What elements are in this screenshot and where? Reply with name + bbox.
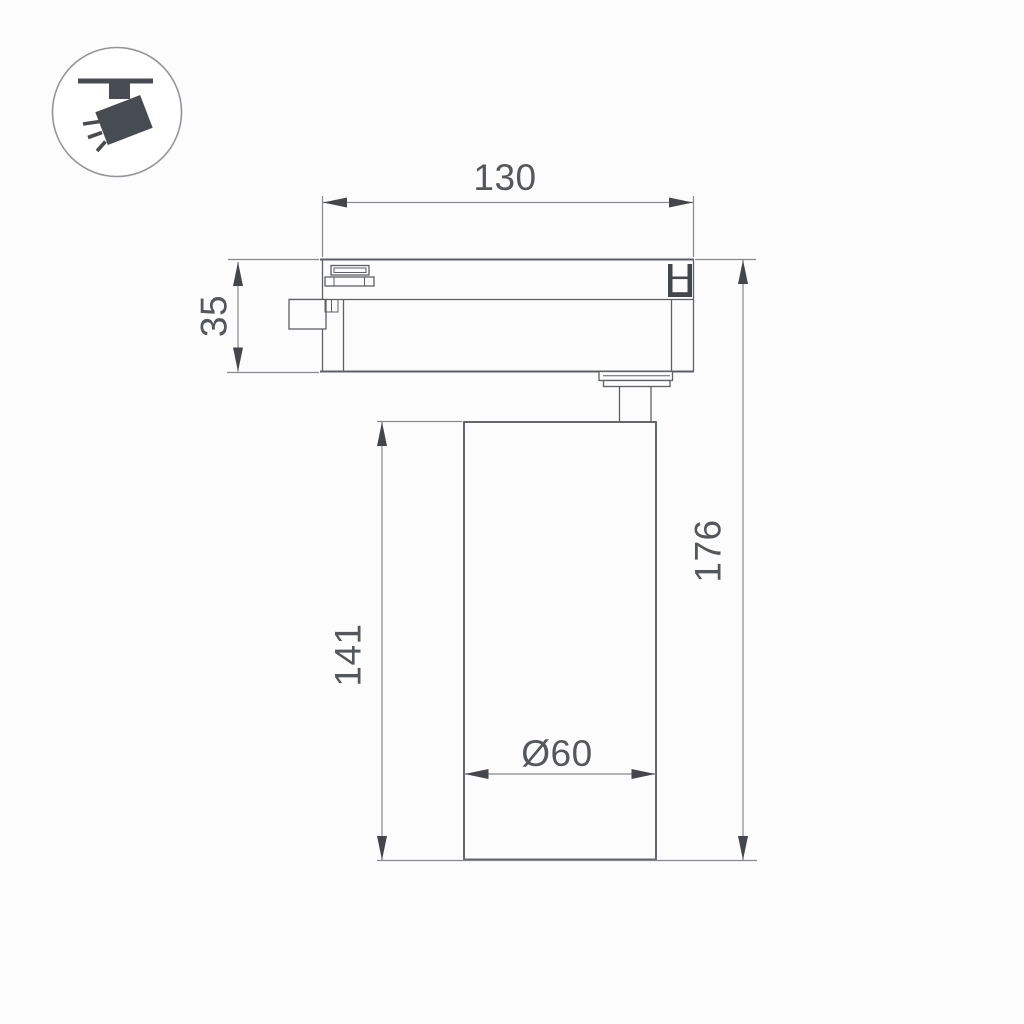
ground-clip-left-bar [668, 264, 673, 297]
technical-drawing-page: 130 35 141 176 Ø60 [0, 0, 1024, 1024]
arrowhead-up [377, 422, 387, 446]
dim-body-height-label: 141 [328, 623, 369, 686]
mount-stem-icon [109, 83, 130, 99]
joint-flange-step2 [604, 381, 671, 387]
arrowhead-up [233, 262, 243, 286]
ground-clip-right-bar [688, 264, 693, 297]
dim-track-width-label: 130 [473, 157, 536, 198]
arrowhead-left [323, 198, 347, 208]
adapter-latch-box [289, 300, 326, 330]
ground-clip-middle-bar [670, 277, 690, 280]
dim-total-height: 176 [688, 260, 757, 861]
ground-clip-bottom-bar [668, 292, 692, 297]
track-adapter-view [289, 260, 694, 372]
adapter-fill [323, 260, 694, 372]
dim-adapter-height-label: 35 [194, 295, 235, 337]
light-ray-icon [83, 122, 100, 125]
dim-body-diameter-label: Ø60 [521, 733, 592, 774]
dim-total-height-label: 176 [688, 519, 729, 582]
lamp-stem-joint [599, 372, 673, 423]
drawing-svg: 130 35 141 176 Ø60 [0, 0, 1024, 1024]
dim-track-width: 130 [323, 157, 694, 257]
arrowhead-down [738, 836, 748, 860]
dim-body-height: 141 [328, 422, 463, 861]
arrowhead-up [738, 260, 748, 284]
track-bar-icon [78, 79, 153, 84]
lamp-body-cylinder [464, 422, 656, 860]
orientation-icon [53, 48, 182, 177]
arrowhead-right [669, 198, 693, 208]
arrowhead-down [233, 348, 243, 372]
arrowhead-down [377, 836, 387, 860]
